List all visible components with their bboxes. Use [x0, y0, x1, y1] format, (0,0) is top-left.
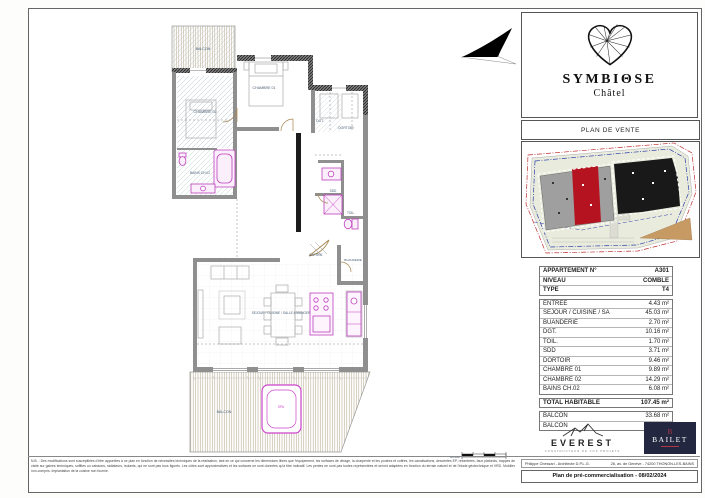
spa-label: SPA	[278, 405, 285, 409]
everest-logo: EVEREST CONSTRUCTEUR DE VOS PROJETS	[521, 423, 644, 453]
label-toil: TOIL.	[347, 211, 355, 215]
footer-separator	[28, 456, 700, 457]
label-chambre02: CHAMBRE 02	[194, 110, 217, 114]
label-sejour: SEJOUR / CUISINE / SALLE A MANGER	[252, 311, 311, 315]
table-row: NIVEAUCOMBLE	[540, 277, 672, 287]
label-balcon-top: BALCON	[196, 47, 211, 51]
title-block: Philippe Chessari - Architecte D.P.L.G. …	[521, 459, 698, 483]
label-sdd: SDD	[330, 189, 337, 193]
disclaimer-text: N.B. : Des modifications sont susceptibl…	[31, 459, 515, 473]
apartment-table: APPARTEMENT N°A301 NIVEAUCOMBLE TYPET4 E…	[539, 266, 673, 434]
table-row: BUANDERIE2.70 m²	[540, 319, 672, 329]
brand-subtitle: Châtel	[593, 88, 625, 99]
structural-wall	[296, 133, 301, 232]
spa-jacuzzi: SPA	[262, 385, 301, 433]
bailet-rule	[661, 446, 679, 447]
plan-title: Plan de pré-commercialisation - 08/02/20…	[521, 470, 698, 483]
north-arrow-icon	[461, 28, 516, 64]
everest-tagline: CONSTRUCTEUR DE VOS PROJETS	[545, 449, 620, 453]
label-balcon-bottom: BALCON	[217, 410, 232, 414]
site-plan-drawing	[522, 142, 699, 257]
label-dgt: DGT.	[316, 119, 324, 123]
table-row: SDD3.71 m²	[540, 347, 672, 357]
table-row: CHAMBRE 019.89 m²	[540, 366, 672, 376]
plan-type-box: PLAN DE VENTE	[521, 120, 700, 140]
bailet-logo: B BAILET	[644, 422, 696, 454]
table-row: APPARTEMENT N°A301	[540, 267, 672, 277]
table-row: DGT.10.16 m²	[540, 328, 672, 338]
table-row: BAINS CH.026.08 m²	[540, 385, 672, 394]
table-row: CHAMBRE 0214.29 m²	[540, 376, 672, 386]
site-highlight-building	[572, 166, 601, 225]
table-row: TYPET4	[540, 286, 672, 295]
architect-name: Philippe Chessari - Architecte D.P.L.G.	[525, 462, 590, 466]
heart-logo-icon	[579, 18, 641, 70]
label-buanderie: BUANDERIE	[344, 258, 362, 262]
architect-row: Philippe Chessari - Architecte D.P.L.G. …	[521, 459, 698, 468]
label-bains: BAINS CH.02	[190, 171, 210, 175]
plan-type-label: PLAN DE VENTE	[581, 127, 640, 134]
brand-name: SYMBIΘSE	[563, 72, 657, 88]
everest-name: EVEREST	[551, 438, 614, 448]
mountain-icon	[561, 423, 605, 437]
table-section-total: TOTAL HABITABLE107.45 m²	[539, 398, 673, 409]
table-row-total: TOTAL HABITABLE107.45 m²	[540, 399, 672, 408]
label-chambre01: CHAMBRE 01	[253, 86, 276, 90]
slope-hatch-dortoir	[315, 92, 341, 132]
architect-address: 26, av. de Genève - 74200 THONON-LES-BAI…	[611, 462, 694, 466]
table-section-identity: APPARTEMENT N°A301 NIVEAUCOMBLE TYPET4	[539, 266, 673, 296]
table-row: TOIL.1.70 m²	[540, 338, 672, 348]
brand-logo-box: SYMBIΘSE Châtel	[521, 12, 698, 118]
bailet-name: BAILET	[652, 435, 688, 444]
table-row: ENTREE4.43 m²	[540, 300, 672, 310]
table-row: DORTOIR9.46 m²	[540, 357, 672, 367]
partner-logos: EVEREST CONSTRUCTEUR DE VOS PROJETS B BA…	[521, 420, 698, 456]
table-section-rooms: ENTREE4.43 m² SEJOUR / CUISINE / SA45.03…	[539, 299, 673, 395]
label-dortoir: DORTOIR	[338, 126, 354, 130]
site-plan-box	[521, 141, 700, 258]
label-entree: ENTREE	[310, 253, 323, 257]
table-row: SEJOUR / CUISINE / SA45.03 m²	[540, 309, 672, 319]
